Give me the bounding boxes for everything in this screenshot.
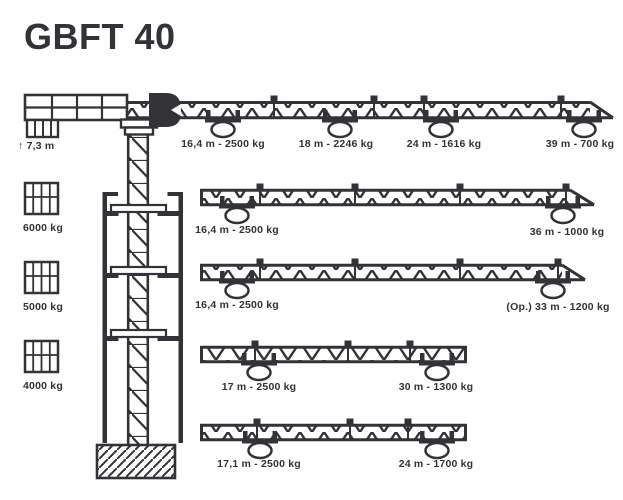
hook-ball	[226, 208, 249, 223]
jib-tip	[590, 102, 613, 118]
counterweight-blocks	[25, 183, 58, 372]
counterweight-block	[25, 341, 58, 372]
counterweight-label: 5000 kg	[23, 301, 63, 313]
capacity-label: 18 m - 2246 kg	[299, 138, 374, 150]
hook-ball	[573, 122, 596, 137]
hook-ball	[552, 208, 575, 223]
jib-row-4	[200, 346, 467, 363]
capacity-label: (Op.) 33 m - 1200 kg	[506, 301, 609, 313]
hook-ball	[426, 365, 449, 380]
pendant-tick	[257, 184, 264, 190]
capacity-label: 17 m - 2500 kg	[222, 381, 297, 393]
capacity-label: 16,4 m - 2500 kg	[181, 138, 265, 150]
pendant-tick	[457, 259, 464, 265]
pendant-tick	[271, 96, 278, 102]
tower-mast	[127, 134, 149, 445]
pendant-tick	[352, 259, 359, 265]
pendant-tick	[558, 96, 565, 102]
jib-tip	[570, 190, 594, 205]
jib-row-1	[121, 101, 613, 119]
crane-diagram	[0, 0, 623, 500]
capacity-label: 24 m - 1616 kg	[407, 138, 482, 150]
counterweight-label: 4000 kg	[23, 380, 63, 392]
jib-tip	[562, 265, 585, 280]
hook-ball	[426, 443, 449, 458]
hook-ball	[249, 443, 272, 458]
counterweight-block	[25, 262, 58, 293]
pendant-tick	[371, 96, 378, 102]
capacity-label: 39 m - 700 kg	[546, 138, 615, 150]
capacity-label: 24 m - 1700 kg	[399, 458, 474, 470]
capacity-label: 30 m - 1300 kg	[399, 381, 474, 393]
pendant-tick	[405, 419, 412, 425]
hook-ball	[226, 283, 249, 298]
hook-ball	[212, 122, 235, 137]
jib-row-3	[200, 264, 585, 281]
pendant-tick	[407, 341, 414, 347]
pendant-tick	[352, 184, 359, 190]
capacity-label: 36 m - 1000 kg	[530, 226, 605, 238]
hook-ball	[542, 283, 565, 298]
pendant-tick	[563, 184, 570, 190]
counterjib-height-label: ↑ 7,3 m	[18, 140, 54, 152]
capacity-label: 17,1 m - 2500 kg	[217, 458, 301, 470]
jib-row-5	[200, 424, 467, 441]
capacity-label: 16,4 m - 2500 kg	[195, 224, 279, 236]
pendant-tick	[252, 341, 259, 347]
hook-ball	[329, 122, 352, 137]
foundation-block	[97, 445, 175, 478]
hook-ball	[430, 122, 453, 137]
pendant-tick	[257, 259, 264, 265]
counterweight-label: 6000 kg	[23, 222, 63, 234]
pendant-tick	[254, 419, 261, 425]
hook-ball	[248, 365, 271, 380]
pendant-tick	[457, 184, 464, 190]
counter-jib	[25, 95, 127, 137]
pendant-tick	[345, 341, 352, 347]
pendant-tick	[347, 419, 354, 425]
pendant-tick	[421, 96, 428, 102]
counterweight-block	[25, 183, 58, 214]
operator-cab	[149, 93, 181, 127]
pendant-tick	[555, 259, 562, 265]
capacity-label: 16,4 m - 2500 kg	[195, 299, 279, 311]
